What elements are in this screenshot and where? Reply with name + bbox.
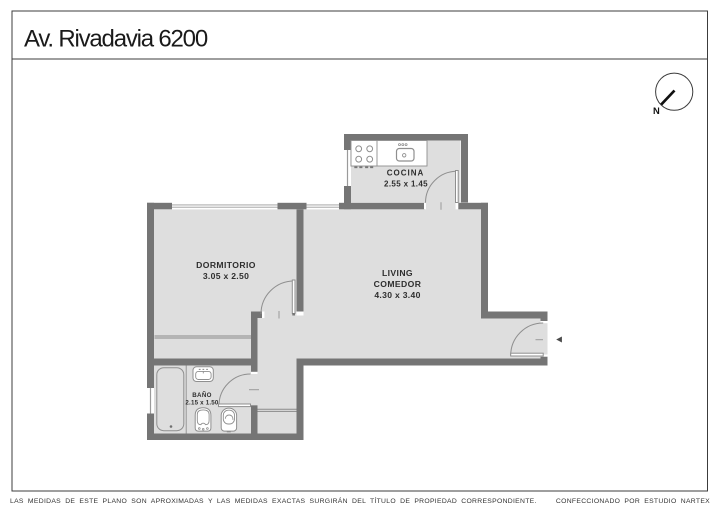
svg-text:BAÑO: BAÑO — [192, 392, 211, 399]
svg-text:LIVING: LIVING — [382, 268, 413, 278]
svg-text:COCINA: COCINA — [387, 169, 425, 178]
svg-text:Av. Rivadavia 6200: Av. Rivadavia 6200 — [24, 26, 208, 53]
svg-text:4.30 x 3.40: 4.30 x 3.40 — [374, 290, 420, 300]
svg-text:LAS MEDIDAS DE ESTE PLANO SON: LAS MEDIDAS DE ESTE PLANO SON APROXIMADA… — [10, 496, 537, 505]
svg-text:2.15 x 1.50: 2.15 x 1.50 — [185, 400, 219, 407]
svg-text:CONFECCIONADO POR ESTUDIO NART: CONFECCIONADO POR ESTUDIO NARTEX — [556, 498, 710, 505]
svg-text:DORMITORIO: DORMITORIO — [196, 260, 256, 270]
svg-text:2.55 x 1.45: 2.55 x 1.45 — [384, 179, 428, 188]
svg-text:3.05 x 2.50: 3.05 x 2.50 — [203, 271, 249, 281]
svg-text:N: N — [653, 105, 660, 116]
svg-text:COMEDOR: COMEDOR — [374, 279, 422, 289]
